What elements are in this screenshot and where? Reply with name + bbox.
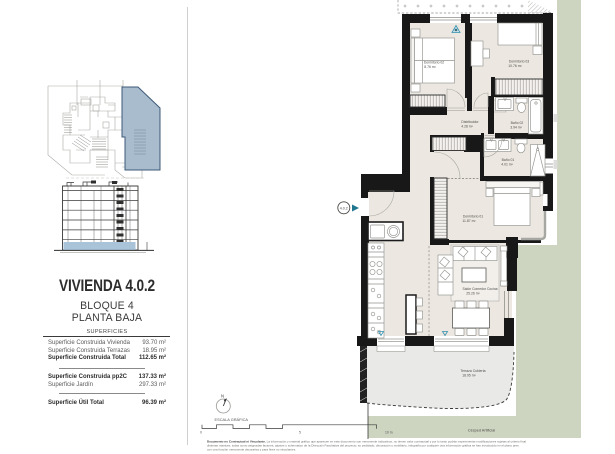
svg-text:3.94 m²: 3.94 m² — [510, 126, 522, 130]
svg-text:4.0.2: 4.0.2 — [340, 206, 348, 210]
svg-text:Baño 02: Baño 02 — [511, 121, 524, 125]
svg-text:Distribuidor: Distribuidor — [461, 120, 479, 124]
svg-text:Dormitorio 02: Dormitorio 02 — [424, 61, 444, 65]
svg-text:N: N — [221, 394, 224, 399]
svg-text:con una función meramente deco: con una función meramente decorativa y p… — [207, 448, 296, 452]
svg-text:0: 0 — [200, 431, 202, 435]
svg-text:10.76 m²: 10.76 m² — [508, 64, 522, 68]
svg-text:Césped Artificial: Césped Artificial — [468, 428, 495, 432]
svg-text:Dormitorio 03: Dormitorio 03 — [509, 60, 529, 64]
svg-text:Terraza Cubierta: Terraza Cubierta — [460, 369, 485, 373]
svg-text:Salón Comedor Cocina: Salón Comedor Cocina — [462, 287, 497, 291]
svg-text:5: 5 — [299, 431, 301, 435]
svg-text:18.95 m²: 18.95 m² — [462, 374, 476, 378]
svg-text:10 m: 10 m — [385, 431, 393, 435]
svg-text:4.01 m²: 4.01 m² — [501, 163, 513, 167]
svg-text:11.87 m²: 11.87 m² — [462, 219, 476, 223]
svg-text:4.28 m²: 4.28 m² — [461, 125, 473, 129]
svg-text:8.76 m²: 8.76 m² — [424, 65, 436, 69]
svg-text:25.26 m²: 25.26 m² — [466, 292, 480, 296]
svg-text:Dormitorio 01: Dormitorio 01 — [463, 215, 483, 219]
svg-text:ESCALA GRÁFICA: ESCALA GRÁFICA — [215, 417, 249, 422]
svg-text:Baño 01: Baño 01 — [502, 158, 515, 162]
